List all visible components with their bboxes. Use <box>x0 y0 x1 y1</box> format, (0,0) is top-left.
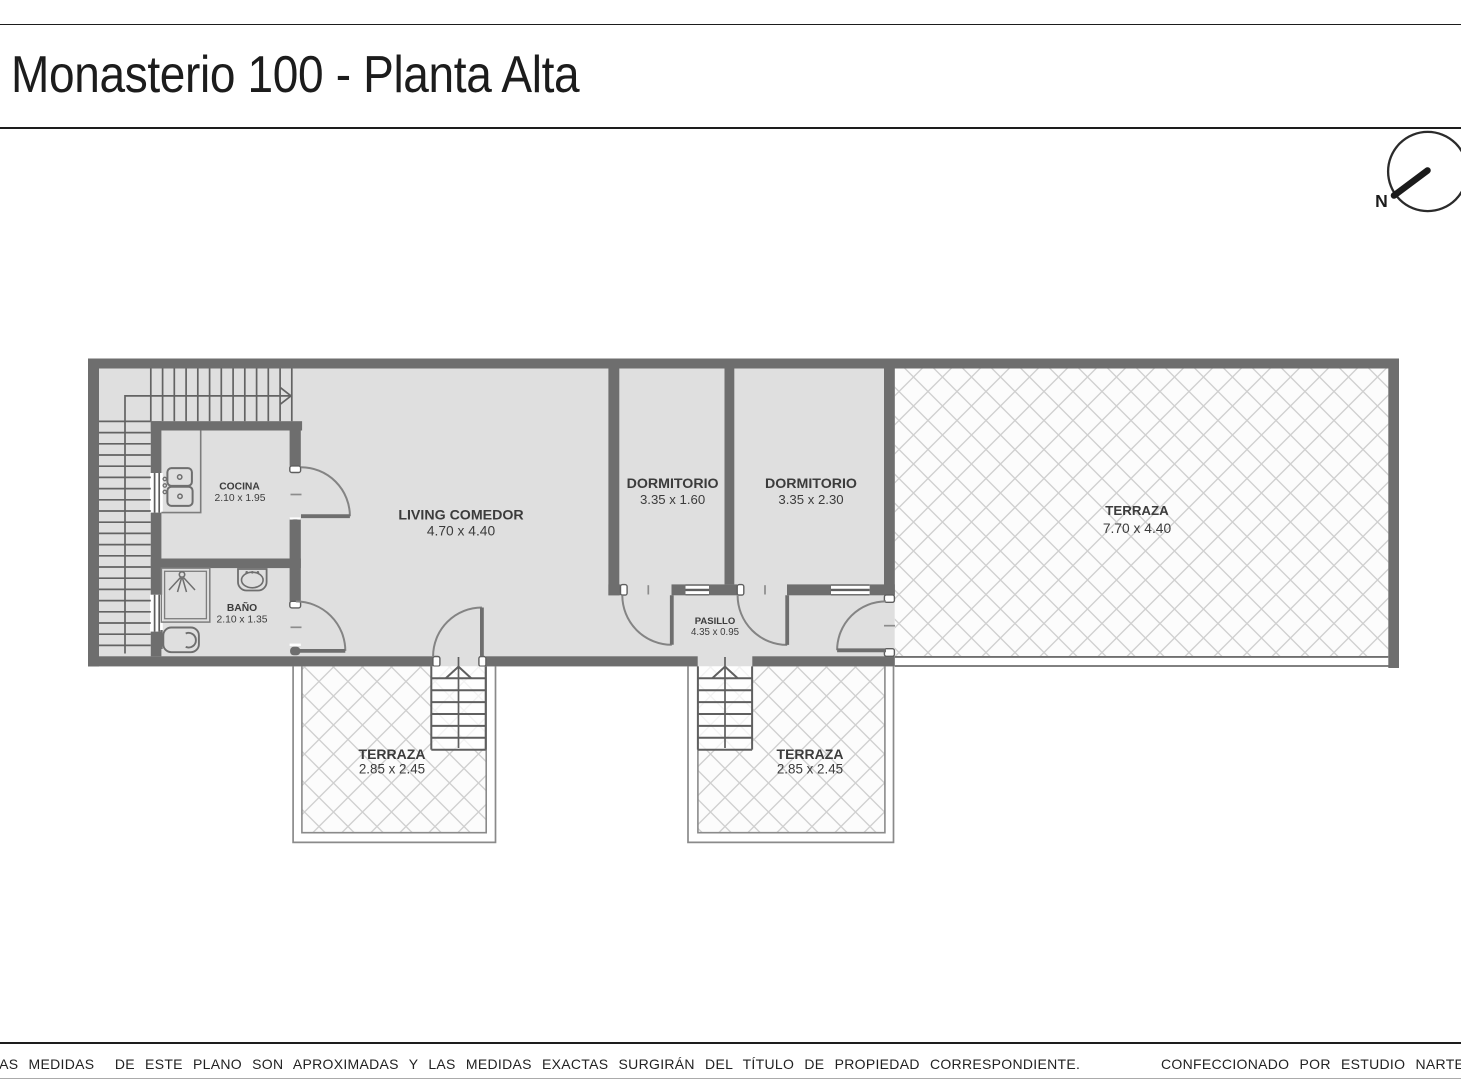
svg-text:2.85 x 2.45: 2.85 x 2.45 <box>359 762 425 777</box>
svg-text:PASILLO: PASILLO <box>695 616 735 627</box>
svg-text:N: N <box>1375 191 1388 211</box>
svg-text:4.70 x 4.40: 4.70 x 4.40 <box>427 523 496 538</box>
svg-text:3.35 x 2.30: 3.35 x 2.30 <box>778 492 843 507</box>
svg-text:7.70 x 4.40: 7.70 x 4.40 <box>1103 521 1172 536</box>
svg-text:TERRAZA: TERRAZA <box>359 746 426 762</box>
svg-text:TERRAZA: TERRAZA <box>1105 503 1169 518</box>
svg-text:BAÑO: BAÑO <box>227 601 257 614</box>
svg-text:2.85 x 2.45: 2.85 x 2.45 <box>777 762 843 777</box>
svg-text:LIVING COMEDOR: LIVING COMEDOR <box>398 508 523 524</box>
svg-text:DORMITORIO: DORMITORIO <box>765 476 857 492</box>
svg-text:TERRAZA: TERRAZA <box>777 746 844 762</box>
svg-text:2.10 x 1.95: 2.10 x 1.95 <box>215 493 266 504</box>
svg-text:COCINA: COCINA <box>219 482 260 493</box>
svg-text:4.35 x 0.95: 4.35 x 0.95 <box>691 627 739 638</box>
svg-text:2.10 x 1.35: 2.10 x 1.35 <box>217 614 268 625</box>
svg-text:3.35 x 1.60: 3.35 x 1.60 <box>640 492 705 507</box>
svg-text:DORMITORIO: DORMITORIO <box>627 476 719 492</box>
